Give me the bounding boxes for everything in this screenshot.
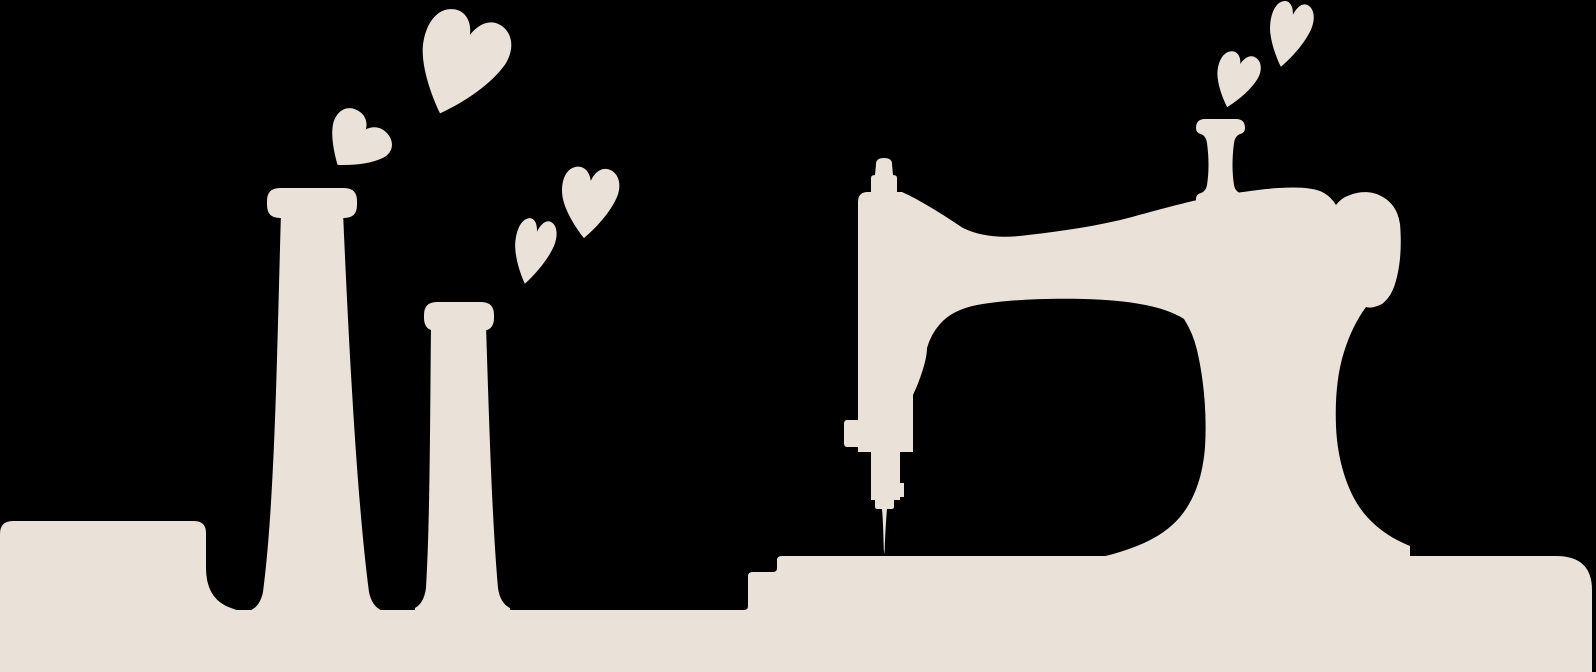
sewing-scene-illustration <box>0 0 1596 672</box>
pincushion-box-silhouette <box>0 521 240 655</box>
illustration-canvas <box>0 0 1596 672</box>
